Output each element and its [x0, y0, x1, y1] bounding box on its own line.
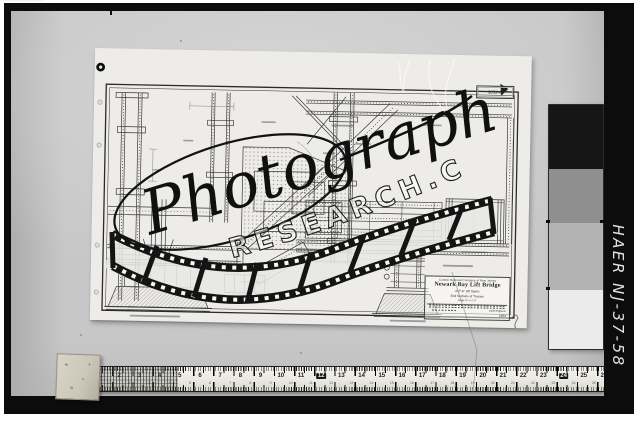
- approved-label: Chief Engineer: [489, 310, 506, 314]
- ruler-number: 16: [399, 373, 406, 379]
- ruler-number: 5: [178, 373, 181, 379]
- ruler-number-small: 9: [270, 381, 272, 385]
- archive-catalog-number: HAER NJ-37-58: [609, 224, 627, 367]
- ruler-number-small: 14: [370, 381, 374, 385]
- ruler-number-small: 5: [189, 381, 191, 385]
- frame-nick: [110, 11, 112, 15]
- ruler-number: 24: [559, 373, 569, 379]
- ruler-number: 12: [316, 373, 326, 379]
- ruler-number-small: 11: [309, 381, 313, 385]
- ruler-number: 8: [239, 373, 242, 379]
- ruler-number-small: 8: [249, 381, 251, 385]
- ruler-number: 13: [338, 373, 345, 379]
- ruler-number-small: 21: [511, 381, 515, 385]
- ruler-number: 25: [580, 373, 587, 379]
- ruler-number-small: 20: [491, 381, 495, 385]
- ruler-number-small: 18: [450, 381, 454, 385]
- ruler-number-small: 17: [430, 381, 434, 385]
- ruler-number-small: 13: [349, 381, 353, 385]
- ruler-number: 17: [419, 373, 426, 379]
- ruler-number: 6: [198, 373, 201, 379]
- ruler-number: 11: [298, 373, 304, 379]
- ruler-number: 9: [259, 373, 262, 379]
- title-block: Central Railroad Company of New Jersey N…: [424, 275, 511, 321]
- ruler-number-small: 6: [209, 381, 211, 385]
- ruler-number-small: 24: [572, 381, 576, 385]
- dust-speck: [300, 352, 302, 354]
- ruler-number: 10: [277, 373, 284, 379]
- wood-block: [55, 353, 101, 401]
- archival-photo-stage: Central Railroad Company of New Jersey N…: [0, 0, 640, 421]
- dust-speck: [180, 40, 182, 42]
- measuring-ruler: 1234567891011121314151617181920212223242…: [92, 366, 604, 392]
- illegible-signature: [432, 310, 456, 312]
- binder-holes: [94, 100, 102, 294]
- ruler-number: 15: [378, 373, 385, 379]
- ruler-number: 20: [479, 373, 486, 379]
- ruler-number-small: 16: [410, 381, 414, 385]
- ruler-number-small: 19: [471, 381, 475, 385]
- ruler-number-small: 7: [229, 381, 231, 385]
- grayscale-step: [549, 105, 603, 169]
- grayscale-step: [549, 290, 603, 349]
- ruler-number: 7: [219, 373, 222, 379]
- ruler-number: 18: [439, 373, 446, 379]
- grayscale-step: [549, 169, 603, 223]
- ruler-number-small: 25: [592, 381, 596, 385]
- ruler-number-small: 15: [390, 381, 394, 385]
- photo-frame-left: [4, 3, 11, 414]
- ruler-number: 23: [540, 373, 547, 379]
- ruler-number: 22: [520, 373, 527, 379]
- ruler-number: 19: [459, 373, 466, 379]
- grayscale-step: [549, 223, 603, 290]
- grayscale-step-card: [548, 104, 604, 350]
- card-notch: [546, 287, 550, 290]
- drawing-number-box: 3052-D: [476, 85, 514, 99]
- dust-speck: [80, 334, 82, 336]
- ruler-number: 14: [358, 373, 365, 379]
- ruler-number-small: 22: [531, 381, 535, 385]
- ruler-number-small: 12: [329, 381, 333, 385]
- ruler-number-small: 23: [551, 381, 555, 385]
- card-notch: [546, 220, 550, 223]
- ruler-number-small: 10: [289, 381, 293, 385]
- ruler-worn-end: [92, 367, 178, 391]
- blueprint-sheet: Central Railroad Company of New Jersey N…: [90, 48, 532, 328]
- ruler-number: 21: [500, 373, 507, 379]
- photo-frame-top: [4, 3, 634, 11]
